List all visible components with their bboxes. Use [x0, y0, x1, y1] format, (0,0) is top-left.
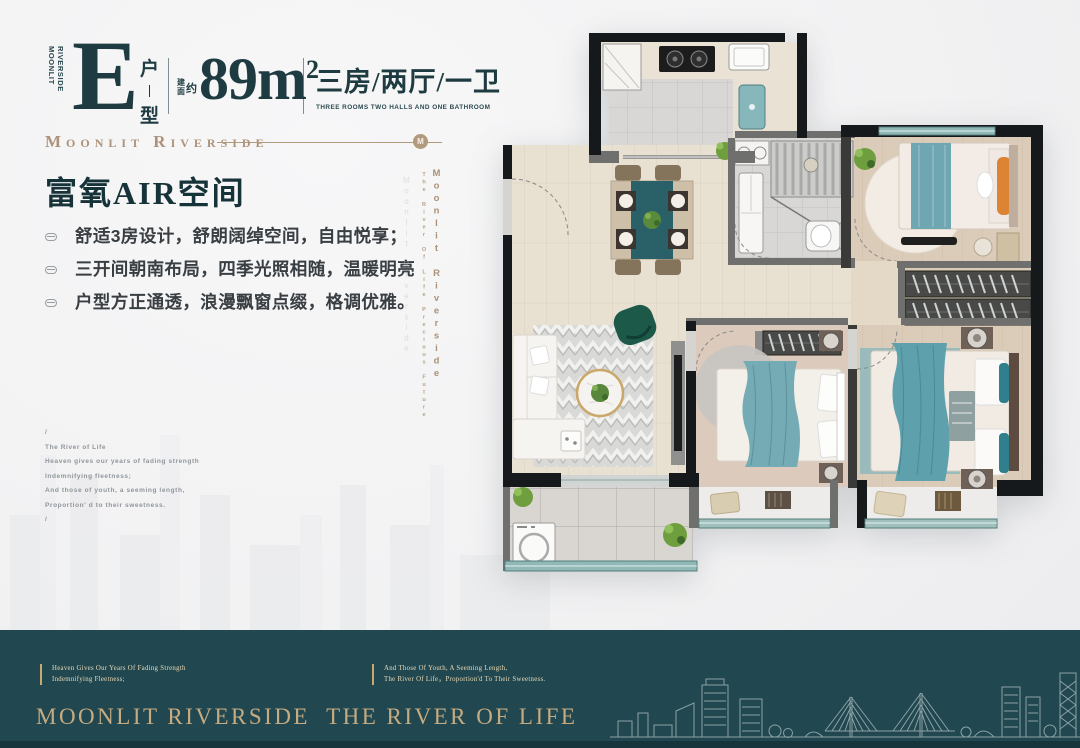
poem-line: And those of youth, a seeming length, — [45, 484, 199, 499]
desk — [997, 233, 1019, 263]
area-prefix-char-3: 约 — [186, 80, 197, 96]
unit-type-char-top: 户 — [140, 54, 159, 81]
footer-band: Heaven Gives Our Years Of Fading Strengt… — [0, 630, 1080, 748]
bed-bench — [901, 237, 957, 245]
footer-quote-line: Heaven Gives Our Years Of Fading Strengt… — [52, 664, 186, 675]
page-title: 富氧AIR空间 — [45, 168, 246, 214]
brand-vertical-label: MOONLIT RIVERSIDE — [47, 46, 64, 92]
list-item: 三开间朝南布局，四季光照相随，温暖明亮 — [45, 259, 415, 279]
corridor-floor — [733, 263, 855, 325]
watermark-ghost: Moonlit Riverside — [402, 176, 411, 506]
poem-line: The River of Life — [45, 441, 199, 456]
area-prefix: 建 面 约 — [177, 78, 197, 96]
selling-points-list: 舒适3房设计，舒朗阔绰空间，自由悦享； 三开间朝南布局，四季光照相随，温暖明亮 … — [45, 226, 415, 325]
bullet-text: 三开间朝南布局，四季光照相随，温暖明亮 — [75, 259, 415, 279]
layout-label-en: THREE ROOMS TWO HALLS AND ONE BATHROOM — [316, 104, 501, 111]
area-prefix-stack: 建 面 — [177, 78, 185, 96]
dining-area — [611, 165, 693, 275]
area-prefix-char-1: 建 — [177, 78, 185, 87]
bed-tray — [949, 391, 975, 441]
unit-letter: E — [72, 26, 139, 126]
poem-line: / — [45, 513, 199, 528]
brand-row: Moonlit Riverside M — [45, 132, 427, 152]
poem-line: / — [45, 426, 199, 441]
orange-pillow — [997, 157, 1011, 215]
list-item: 户型方正通透，浪漫飘窗点缀，格调优雅。 — [45, 292, 415, 312]
bullet-bead-icon — [45, 233, 57, 241]
table-plant — [643, 211, 661, 229]
layout-block: 三房/两厅/一卫 THREE ROOMS TWO HALLS AND ONE B… — [316, 60, 501, 111]
bay-pillow — [874, 491, 907, 517]
bullet-bead-icon — [45, 266, 57, 274]
header-divider-1 — [168, 58, 169, 114]
watermark-small: The River Of Life Precious Future — [421, 172, 427, 472]
poem-line: Heaven gives our years of fading strengt… — [45, 455, 199, 470]
shower-head — [804, 158, 818, 172]
header-divider-2 — [303, 58, 304, 114]
area-block: 建 面 约 89m2 — [177, 50, 318, 108]
footer-quote-line: The River Of Life，Proportion'd To Their … — [384, 675, 545, 686]
brand-rule-line — [217, 142, 442, 143]
desk-chair — [974, 238, 992, 256]
bay-pillow — [710, 492, 740, 515]
teal-blanket — [891, 343, 950, 481]
area-prefix-char-2: 面 — [177, 87, 185, 96]
watermark-large: Moonlit Riverside — [431, 168, 442, 568]
layout-label-cn: 三房/两厅/一卫 — [316, 60, 501, 99]
side-table — [561, 431, 581, 451]
area-number: 89m — [199, 46, 306, 112]
footer-quote-column-2: And Those Of Youth, A Seeming Length, Th… — [372, 664, 545, 685]
city-skyline-lineart — [610, 659, 1080, 743]
footer-slogan: MOONLIT RIVERSIDE THE RIVER OF LIFE — [36, 704, 577, 730]
poem-line: Proportion' d to their sweetness. — [45, 499, 199, 514]
footer-quote-line: And Those Of Youth, A Seeming Length, — [384, 664, 545, 675]
flyer-page: MOONLIT RIVERSIDE E 户 型 建 面 约 89m2 三房/两厅… — [0, 0, 1080, 748]
footer-quote-column-1: Heaven Gives Our Years Of Fading Strengt… — [40, 664, 186, 685]
tv-screen — [674, 355, 682, 451]
poem-block: / The River of Life Heaven gives our yea… — [45, 426, 199, 528]
unit-type-dash — [149, 85, 150, 97]
poem-line: Indemnifying fleetness; — [45, 470, 199, 485]
bullet-bead-icon — [45, 299, 57, 307]
list-item: 舒适3房设计，舒朗阔绰空间，自由悦享； — [45, 226, 415, 246]
brand-m-badge: M — [413, 134, 428, 149]
unit-type-char-bottom: 型 — [140, 101, 159, 128]
bullet-text: 舒适3房设计，舒朗阔绰空间，自由悦享； — [75, 226, 407, 246]
area-value: 89m2 — [199, 50, 318, 108]
brand-vertical-line2: RIVERSIDE — [56, 46, 65, 92]
teal-blanket — [742, 361, 800, 467]
bullet-text: 户型方正通透，浪漫飘窗点缀，格调优雅。 — [75, 292, 415, 312]
floor-plan — [503, 33, 1043, 608]
brand-vertical-line1: MOONLIT — [47, 46, 56, 92]
unit-type-label: 户 型 — [140, 54, 159, 128]
footer-quote-line: Indemnifying Fleetness; — [52, 675, 186, 686]
